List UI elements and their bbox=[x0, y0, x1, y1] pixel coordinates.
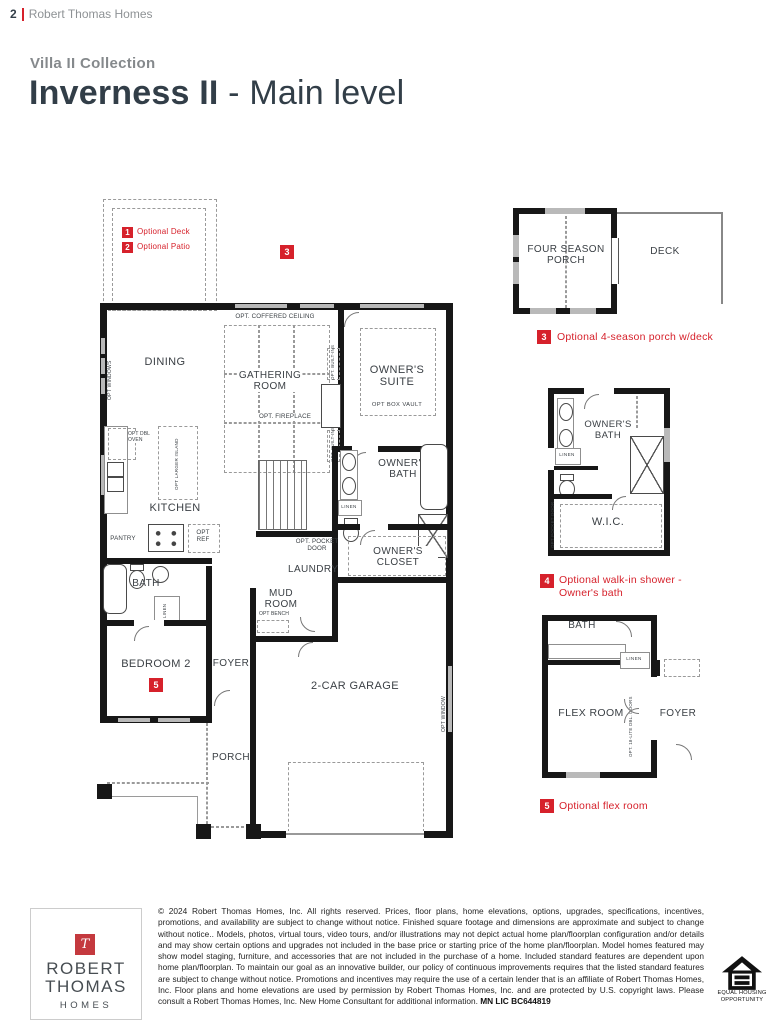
porch-post bbox=[196, 824, 211, 839]
brand-name: Robert Thomas Homes bbox=[29, 7, 153, 21]
robert-thomas-logo: T ROBERT THOMAS HOMES bbox=[30, 908, 142, 1020]
bedroom-2-label: BEDROOM 2 bbox=[112, 658, 200, 670]
coffered-ceiling-line bbox=[224, 422, 330, 424]
linen-label: LINEN bbox=[620, 656, 648, 661]
door-arc bbox=[624, 684, 654, 714]
legend-label-2: Optional Patio bbox=[137, 242, 190, 251]
vanity-counter bbox=[548, 644, 626, 659]
logo-monogram: T bbox=[75, 934, 95, 955]
wall bbox=[332, 583, 338, 642]
equal-housing-icon bbox=[722, 956, 762, 990]
porch-edge bbox=[112, 796, 198, 797]
opt-window-label: OPT WINDOW bbox=[441, 696, 447, 732]
opt-dbl-oven-label: OPT DBL OVEN bbox=[128, 432, 154, 443]
level-name: - Main level bbox=[219, 74, 405, 112]
window-marker bbox=[360, 304, 424, 308]
door-arc bbox=[298, 642, 328, 672]
window-marker bbox=[570, 308, 596, 314]
door-arc bbox=[660, 744, 692, 776]
opt-bench-outline bbox=[257, 620, 289, 633]
walk-in-shower bbox=[630, 436, 664, 494]
opt-pocket-door-label: OPT. POCKET DOOR bbox=[294, 539, 340, 553]
window-marker bbox=[300, 304, 334, 308]
wall bbox=[100, 716, 212, 723]
wall bbox=[250, 588, 256, 832]
caption-4-line1: Optional walk-in shower - bbox=[559, 574, 682, 586]
option-badge-3: 3 bbox=[280, 245, 294, 259]
caption-badge-4: 4 bbox=[540, 574, 554, 588]
door-arc bbox=[134, 626, 164, 656]
wall bbox=[256, 636, 338, 642]
window-marker bbox=[513, 235, 519, 257]
bath-label: BATH bbox=[560, 620, 604, 631]
caption-3: Optional 4-season porch w/deck bbox=[557, 331, 713, 343]
kitchen-sink bbox=[107, 462, 124, 477]
wall bbox=[554, 494, 612, 499]
opt-built-ins-label: OPT. BUILT-INS bbox=[330, 345, 335, 380]
foyer-label: FOYER bbox=[212, 658, 250, 669]
wall bbox=[542, 615, 548, 778]
linen-label: LINEN bbox=[338, 504, 360, 509]
logo-name-homes: HOMES bbox=[31, 1000, 141, 1011]
sink bbox=[559, 429, 573, 447]
logo-name-robert: ROBERT bbox=[31, 959, 141, 979]
porch-outline bbox=[107, 782, 209, 784]
license-number: MN LIC BC644819 bbox=[480, 996, 551, 1006]
equal-housing-logo: EQUAL HOUSING OPPORTUNITY bbox=[708, 956, 768, 1004]
opt-pocket-door-label: OPT POCKET DOOR bbox=[550, 502, 555, 548]
wall bbox=[554, 466, 598, 470]
brochure-page: 2 Robert Thomas Homes Villa II Collectio… bbox=[0, 0, 768, 1034]
porch-label: PORCH bbox=[206, 752, 256, 763]
bath-label: BATH bbox=[118, 578, 174, 589]
header-divider bbox=[22, 8, 24, 21]
door-gap bbox=[360, 524, 388, 530]
wall bbox=[651, 740, 657, 778]
caption-4-line2: Owner's bath bbox=[559, 587, 623, 599]
fireplace bbox=[321, 384, 341, 428]
window-marker bbox=[513, 262, 519, 284]
sink bbox=[342, 477, 356, 495]
laundry-label: LAUNDRY bbox=[288, 564, 338, 575]
option-badge-5: 5 bbox=[149, 678, 163, 692]
window-marker bbox=[235, 304, 287, 308]
wall-stub bbox=[651, 660, 660, 676]
linen-label: LINEN bbox=[555, 452, 579, 457]
kitchen-sink bbox=[107, 477, 124, 492]
door-gap bbox=[134, 620, 164, 626]
window-marker bbox=[101, 358, 105, 374]
wall bbox=[542, 660, 620, 665]
stove bbox=[148, 524, 184, 552]
deck-label: DECK bbox=[640, 246, 690, 257]
window-marker bbox=[545, 208, 585, 214]
caption-badge-3: 3 bbox=[537, 330, 551, 344]
coffered-ceiling-outline bbox=[224, 325, 330, 473]
dashed-line bbox=[636, 396, 638, 428]
window-marker bbox=[101, 378, 105, 394]
opt-windows-label: OPT WINDOWS bbox=[107, 360, 113, 400]
coffered-ceiling-line bbox=[293, 325, 295, 473]
wall bbox=[206, 566, 212, 723]
legend-badge-1: 1 bbox=[122, 227, 133, 238]
legend-label-1: Optional Deck bbox=[137, 227, 190, 236]
pantry-label: PANTRY bbox=[102, 536, 144, 543]
opt-ref-label: OPT REF bbox=[190, 530, 216, 544]
door-arc bbox=[214, 690, 246, 722]
garage-door-line bbox=[286, 833, 424, 835]
mud-room-label: MUD ROOM bbox=[258, 588, 304, 610]
flex-room-label: FLEX ROOM bbox=[554, 708, 628, 720]
sink bbox=[559, 403, 573, 421]
bathtub bbox=[420, 444, 448, 510]
porch-post bbox=[97, 784, 112, 799]
porch-outline bbox=[206, 723, 208, 829]
owners-closet-label: OWNER'S CLOSET bbox=[358, 546, 438, 568]
page-number: 2 bbox=[10, 7, 17, 21]
opt-larger-island-label: OPT LARGER ISLAND bbox=[174, 438, 179, 490]
wall bbox=[446, 303, 453, 838]
kitchen-label: KITCHEN bbox=[140, 502, 210, 514]
page-title: Inverness II - Main level bbox=[29, 74, 404, 113]
legal-disclaimer: © 2024 Robert Thomas Homes, Inc. All rig… bbox=[158, 906, 704, 1008]
door-arc bbox=[300, 602, 330, 632]
opt-coffered-ceiling-label: OPT. COFFERED CEILING bbox=[215, 314, 335, 321]
optional-patio-outline bbox=[112, 208, 206, 311]
caption-badge-5: 5 bbox=[540, 799, 554, 813]
porch-post bbox=[246, 824, 261, 839]
door-gap bbox=[584, 388, 614, 394]
opt-fireplace-label: OPT. FIREPLACE bbox=[250, 414, 320, 421]
garage-label: 2-CAR GARAGE bbox=[308, 680, 402, 692]
window-marker bbox=[566, 772, 600, 778]
sink bbox=[342, 453, 356, 471]
wall bbox=[338, 524, 453, 530]
four-season-porch-label: FOUR SEASON PORCH bbox=[524, 244, 608, 266]
wic-label: W.I.C. bbox=[578, 516, 638, 528]
logo-name-thomas: THOMAS bbox=[31, 977, 141, 997]
dining-label: DINING bbox=[125, 356, 205, 368]
deck-outline bbox=[617, 212, 723, 304]
dashed-outline bbox=[664, 659, 700, 677]
opt-box-vault-label: OPT BOX VAULT bbox=[362, 402, 432, 408]
page-header: 2 Robert Thomas Homes bbox=[10, 7, 153, 21]
equal-housing-text-1: EQUAL HOUSING bbox=[708, 990, 768, 997]
window-marker bbox=[448, 666, 452, 732]
linen-label: LINEN bbox=[162, 604, 167, 618]
wall bbox=[338, 577, 453, 583]
window-marker bbox=[664, 428, 670, 462]
legal-text: © 2024 Robert Thomas Homes, Inc. All rig… bbox=[158, 906, 704, 1006]
window-marker bbox=[158, 718, 190, 722]
coffered-ceiling-line bbox=[258, 325, 260, 473]
window-marker bbox=[118, 718, 150, 722]
garage-door-outline bbox=[288, 762, 424, 832]
wall bbox=[256, 531, 338, 537]
equal-housing-text-2: OPPORTUNITY bbox=[708, 997, 768, 1004]
foyer-label: FOYER bbox=[658, 708, 698, 719]
opt-bench-label: OPT BENCH bbox=[254, 612, 294, 618]
owners-bath-label: OWNER'S BATH bbox=[578, 420, 638, 441]
plan-name: Inverness II bbox=[29, 74, 219, 112]
caption-5: Optional flex room bbox=[559, 800, 648, 812]
stairs bbox=[258, 460, 307, 530]
gathering-room-label: GATHERING ROOM bbox=[238, 370, 302, 392]
collection-title: Villa II Collection bbox=[30, 55, 155, 72]
window-marker bbox=[101, 338, 105, 354]
legend-badge-2: 2 bbox=[122, 242, 133, 253]
window-marker bbox=[530, 308, 556, 314]
